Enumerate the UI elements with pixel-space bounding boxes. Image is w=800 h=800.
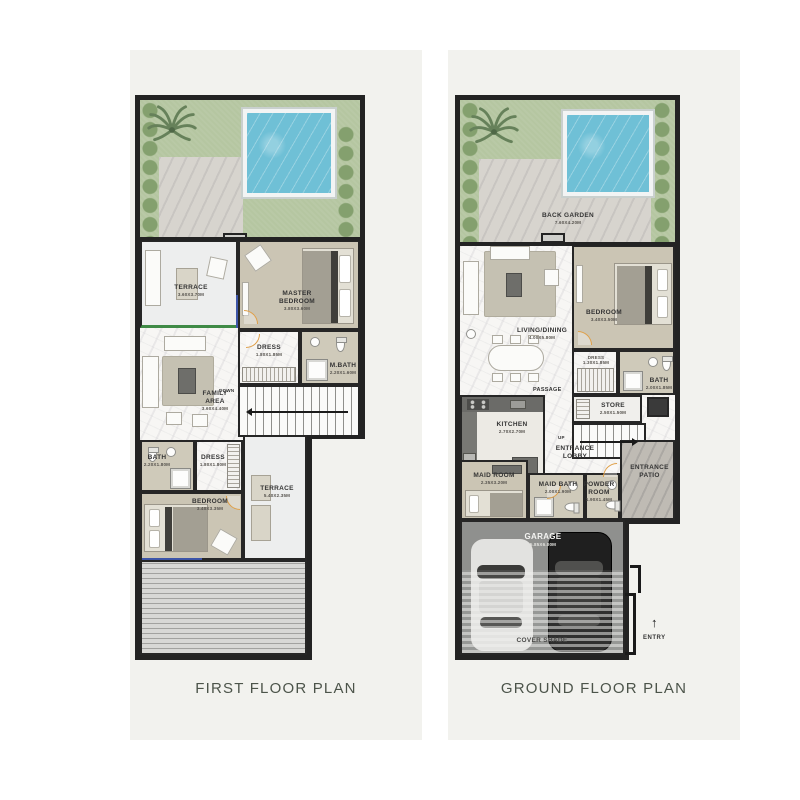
shower (623, 371, 643, 391)
shelves (576, 399, 590, 419)
entry-path-wall (625, 652, 634, 655)
first-floor-panel: TERRACE 3.60X3.70M MASTER BEDROOM 3.80X3… (130, 50, 422, 740)
dining-chair (510, 373, 521, 382)
room-master-bedroom: MASTER BEDROOM 3.80X3.60M (238, 240, 360, 330)
shaft (647, 397, 669, 417)
garden (140, 100, 360, 240)
room-label: DRESS 1.30X1.85M (575, 356, 617, 365)
toilet (606, 501, 618, 510)
first-floor-title: FIRST FLOOR PLAN (130, 680, 422, 697)
room-label: M.BATH (330, 362, 357, 370)
room-bath: BATH 2.00X1.85M (618, 350, 675, 395)
room-master-bath: M.BATH 2.20X1.60M (300, 330, 360, 385)
closet (577, 368, 614, 392)
room-dims: 2.20X1.60M (330, 371, 356, 376)
cover-shade-stripes (462, 570, 623, 653)
sink (607, 480, 617, 490)
back-garden: BACK GARDEN 7.60X4.20M (460, 100, 675, 245)
roof-deck (140, 560, 307, 655)
room-label: BATH (650, 377, 669, 385)
room-entrance-patio: ENTRANCE PATIO (620, 440, 675, 520)
chair (251, 475, 271, 501)
dining-chair (492, 335, 503, 344)
sink (568, 481, 578, 491)
room-living-dining: LIVING/DINING 4.00X5.80M (460, 245, 572, 395)
room-bedroom: BEDROOM 3.40X3.35M (140, 492, 243, 560)
toilet (336, 340, 345, 352)
chair (244, 244, 272, 272)
room-family-area: FAMILY AREA 3.60X4.40M (140, 328, 238, 440)
entry-path-wall (633, 593, 636, 655)
wardrobe (576, 265, 583, 303)
first-floor-plan: TERRACE 3.60X3.70M MASTER BEDROOM 3.80X3… (135, 95, 365, 660)
room-label: DRESS (201, 454, 225, 462)
ground-floor-plan: BACK GARDEN 7.60X4.20M (455, 95, 680, 660)
room-maid-bath: MAID BATH 2.00X1.90M (528, 473, 585, 520)
bed (144, 504, 208, 552)
door-arc (578, 331, 592, 345)
swimming-pool (563, 111, 653, 196)
closet (242, 367, 296, 382)
room-label: DRESS (257, 344, 281, 352)
bed (614, 263, 672, 325)
sofa (142, 356, 159, 408)
palm-tree-icon (143, 101, 201, 159)
closet (227, 444, 240, 488)
dining-chair (528, 335, 539, 344)
room-label: LIVING/DINING (517, 327, 567, 335)
bushes-right (337, 125, 355, 239)
passage-label: PASSAGE (533, 387, 562, 393)
room-dress: DRESS 1.30X1.85M (572, 350, 618, 395)
room-dims: 2.00X1.85M (646, 386, 672, 391)
bushes-right (652, 101, 672, 243)
toilet (662, 359, 671, 371)
dining-chair (492, 373, 503, 382)
sink (648, 357, 658, 367)
side-table (466, 329, 476, 339)
room-dims: 1.80X1.80M (200, 463, 226, 468)
entry-path-wall (625, 593, 634, 596)
armchair (192, 414, 208, 427)
dining-chair (528, 373, 539, 382)
entry-arrow-icon: ↑ (651, 615, 658, 630)
door-arc (246, 334, 260, 348)
room-dims: 2.70X2.70M (499, 430, 525, 435)
door-arc (244, 310, 258, 324)
entry-path-wall (638, 565, 641, 593)
room-terrace-lower: TERRACE 5.40X2.35M (243, 435, 307, 560)
room-terrace-upper: TERRACE 3.60X3.70M (140, 240, 238, 328)
sofa (463, 261, 479, 315)
dining-chair (510, 335, 521, 344)
room-label: KITCHEN (497, 421, 528, 429)
balcony-accent (236, 295, 238, 328)
room-bath: BATH 2.20X1.80M (140, 440, 195, 492)
chair (210, 528, 237, 555)
chair (206, 256, 228, 279)
garage: GARAGE 5.85X6.00M COVER SHADE (460, 520, 625, 655)
room-dress-lower: DRESS 1.80X1.80M (195, 440, 243, 492)
table (176, 268, 198, 300)
shower (306, 359, 328, 381)
room-powder-room: POWDER ROOM 1.90X1.45M (585, 473, 620, 520)
entry-label: ENTRY (643, 635, 666, 641)
stove (467, 399, 489, 410)
stairs-down (238, 385, 360, 437)
sink (166, 447, 176, 457)
garden-patio (159, 157, 243, 240)
bed (302, 248, 354, 324)
balcony-accent (142, 558, 202, 560)
room-dims: 2.35X3.20M (481, 481, 507, 486)
sofa (490, 246, 530, 260)
room-store: STORE 2.50X1.50M (572, 395, 642, 423)
toilet (148, 450, 157, 462)
room-dims: 3.60X4.40M (202, 407, 228, 412)
sofa (145, 250, 161, 306)
door-arc (226, 496, 240, 510)
ground-floor-panel: BACK GARDEN 7.60X4.20M (448, 50, 740, 740)
bed (465, 490, 523, 517)
armchair (166, 412, 182, 425)
stairs-label: UP (558, 435, 565, 440)
dresser (492, 465, 522, 474)
page: TERRACE 3.60X3.70M MASTER BEDROOM 3.80X3… (0, 0, 800, 800)
sofa (164, 336, 206, 351)
coffee-table (178, 368, 196, 394)
room-dims: 1.80X1.85M (256, 353, 282, 358)
kitchen-sink (510, 400, 526, 409)
sink (310, 337, 320, 347)
shower (170, 468, 191, 489)
entry-path-wall (630, 565, 639, 568)
room-maid-room: MAID ROOM 2.35X3.20M (460, 460, 528, 520)
room-bedroom: BEDROOM 3.40X3.50M (572, 245, 675, 350)
lounge-chair (251, 505, 271, 541)
shower (534, 497, 554, 517)
palm-tree-icon (465, 103, 523, 161)
stairs-label: DOWN (219, 388, 234, 393)
ground-floor-title: GROUND FLOOR PLAN (448, 680, 740, 697)
room-dress-master: DRESS 1.80X1.85M (238, 330, 300, 385)
dining-table (488, 345, 544, 371)
armchair (544, 269, 559, 286)
coffee-table (506, 273, 522, 297)
swimming-pool (243, 109, 335, 197)
room-dims: 2.50X1.50M (600, 411, 626, 416)
room-dims: 2.20X1.80M (144, 463, 170, 468)
toilet (565, 503, 577, 512)
room-label: STORE (601, 402, 625, 410)
room-label: ENTRANCE PATIO (626, 464, 673, 480)
